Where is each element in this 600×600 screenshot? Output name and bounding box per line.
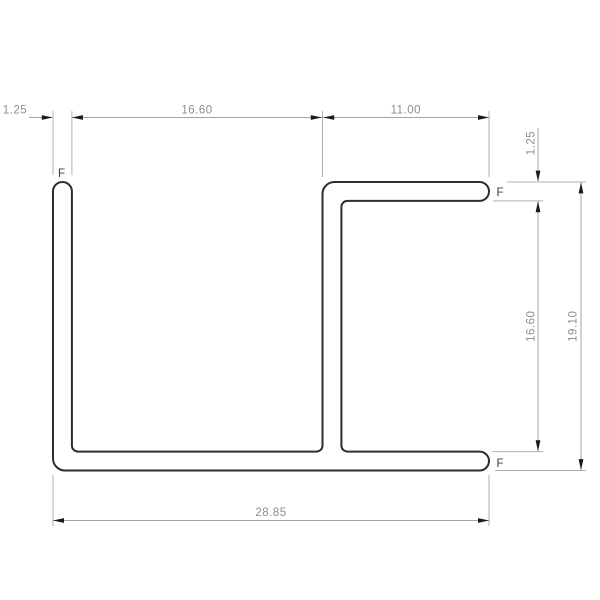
technical-drawing-stage: 1.25 16.60 11.00 1.25 16.60 19.10 28.85 … <box>0 0 600 600</box>
dim-channel-opening-width: 16.60 <box>181 105 212 117</box>
arrow-right <box>478 115 489 120</box>
dim-left-wall-thickness: 1.25 <box>3 105 27 117</box>
part-label-f-bottom-flange: F <box>496 458 503 470</box>
arrow-down <box>536 171 541 182</box>
dim-top-wall-thickness: 1.25 <box>526 131 538 155</box>
arrow-left <box>53 518 64 523</box>
part-labels-group: F F F <box>58 168 504 470</box>
arrow-right <box>478 518 489 523</box>
arrow-up <box>536 201 541 212</box>
part-label-f-left-arm: F <box>58 168 65 180</box>
arrow-left <box>72 115 83 120</box>
dim-overall-height: 19.10 <box>568 311 580 342</box>
dim-inner-height: 16.60 <box>526 311 538 342</box>
arrow-left <box>323 115 334 120</box>
arrow-right <box>311 115 322 120</box>
arrow-down <box>579 459 584 470</box>
arrow-down <box>536 440 541 451</box>
dim-top-flange-width: 11.00 <box>391 105 421 117</box>
profile-outline <box>53 182 489 471</box>
part-label-f-top-flange: F <box>496 187 503 199</box>
profile-outline-group <box>53 182 489 471</box>
dim-overall-width: 28.85 <box>255 507 286 519</box>
arrow-right <box>42 115 53 120</box>
drawing-canvas: 1.25 16.60 11.00 1.25 16.60 19.10 28.85 … <box>0 0 600 600</box>
arrow-up <box>579 182 584 193</box>
